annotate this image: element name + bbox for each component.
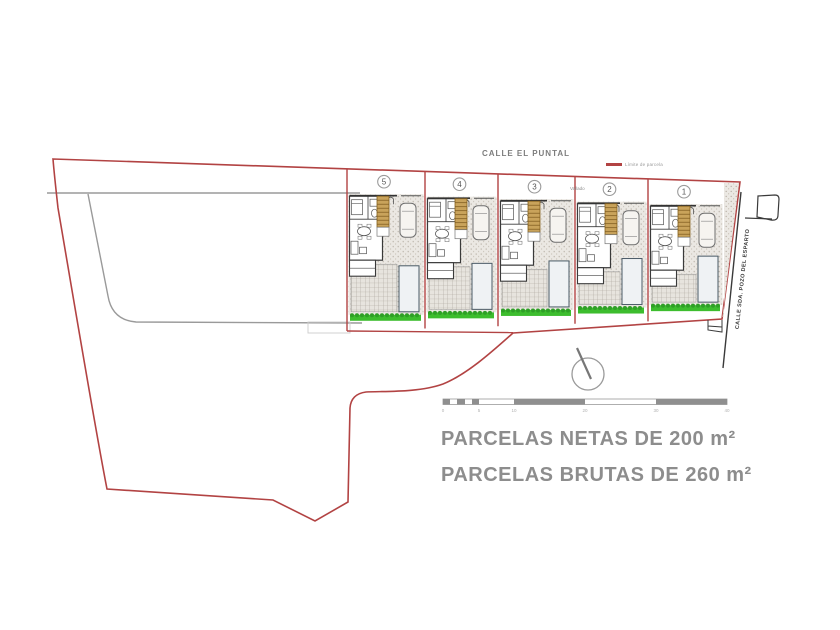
hedge-bush (438, 311, 442, 315)
hedge-bush (671, 304, 675, 308)
chair-symbol (436, 239, 440, 242)
hedge-bush (385, 313, 389, 317)
staircase (455, 199, 467, 230)
bed-symbol (430, 202, 441, 217)
scale-seg (443, 399, 450, 405)
scale-seg (457, 399, 465, 405)
hedge-bush (370, 313, 374, 317)
hedge-bush (598, 306, 602, 310)
hedge-bush (478, 311, 482, 315)
hedge-bush (546, 308, 550, 312)
hedge-bush (468, 311, 472, 315)
hedge-bush (365, 313, 369, 317)
stair-landing (678, 237, 690, 246)
existing-contour-lines (47, 193, 362, 333)
scale-tick-label: 5 (478, 408, 481, 413)
hedge-bush (355, 313, 359, 317)
pool (472, 263, 492, 309)
hedge-bush (453, 311, 457, 315)
hedge-bush (608, 306, 612, 310)
hedge-bush (551, 308, 555, 312)
chair-symbol (436, 227, 440, 230)
hedge-bush (681, 304, 685, 308)
street-corner-island (757, 195, 779, 220)
hedge-bush (463, 311, 467, 315)
hedge-bush (711, 304, 715, 308)
scale-seg (656, 399, 727, 405)
side-table (588, 255, 595, 262)
hedge-bush (483, 311, 487, 315)
hedge-bush (400, 313, 404, 317)
stair-landing (377, 227, 389, 236)
chair-symbol (586, 232, 590, 235)
plot-number: 5 (382, 177, 387, 186)
chair-symbol (586, 244, 590, 247)
hedge-bush (531, 308, 535, 312)
hedge-bush (415, 313, 419, 317)
sofa-symbol (351, 241, 358, 254)
toilet-symbol (600, 217, 606, 225)
hedge-bush (488, 311, 492, 315)
side-table (438, 250, 445, 257)
hedge-bush (375, 313, 379, 317)
legend-label: Límite de parcela (625, 162, 663, 167)
contour-slope-line (88, 194, 362, 323)
gross-parcels-title: PARCELAS BRUTAS DE 260 m² (441, 464, 752, 487)
stair-landing (605, 235, 617, 244)
legend-line-swatch (606, 163, 622, 166)
side-table (511, 252, 518, 259)
hedge-bush (536, 308, 540, 312)
chair-symbol (367, 224, 371, 227)
bed-symbol (653, 210, 664, 225)
sofa-symbol (429, 244, 436, 257)
side-table (661, 257, 668, 264)
hedge-bush (686, 304, 690, 308)
hedge-bush (676, 304, 680, 308)
bed-symbol (352, 200, 363, 215)
scale-tick-label: 0 (442, 408, 445, 413)
existing-structure-outline (308, 322, 350, 333)
hedge-bush (578, 306, 582, 310)
hedge-bush (428, 311, 432, 315)
parcel-boundary-legend: Límite de parcela (606, 162, 663, 167)
hedge-bush (350, 313, 354, 317)
hedge-bush (458, 311, 462, 315)
hedge-bush (583, 306, 587, 310)
hedge-bush (516, 308, 520, 312)
scale-bar: 0510203040 (442, 399, 730, 413)
hedge-bush (448, 311, 452, 315)
plot-number: 2 (607, 185, 612, 194)
site-plan-canvas: 54321 0510203040 CALLE EL PUNTAL Límite (0, 0, 840, 630)
plot-2: 2 (577, 183, 647, 314)
sofa-symbol (579, 249, 586, 262)
chair-symbol (668, 234, 672, 237)
hedge-bush (656, 304, 660, 308)
toilet-symbol (673, 219, 679, 227)
pool (549, 261, 569, 307)
hedge-bush (501, 308, 505, 312)
hedge-bush (433, 311, 437, 315)
pool (698, 256, 718, 302)
plots-layer: 54321 (349, 175, 740, 320)
scale-seg (472, 399, 479, 405)
hedge-bush (706, 304, 710, 308)
hedge-bush (618, 306, 622, 310)
staircase (678, 206, 690, 237)
chair-symbol (509, 229, 513, 232)
plot-3: 3 (500, 180, 574, 316)
hedge-bush (613, 306, 617, 310)
north-arrow (572, 348, 604, 390)
chair-symbol (595, 244, 599, 247)
hedge-bush (443, 311, 447, 315)
car-symbol (699, 213, 715, 247)
plot-number: 3 (532, 182, 537, 191)
dining-table (436, 229, 449, 238)
street-label-top: CALLE EL PUNTAL (482, 149, 570, 158)
hedge-bush (603, 306, 607, 310)
stair-landing (455, 230, 467, 239)
hedge-bush (691, 304, 695, 308)
hedge-bush (395, 313, 399, 317)
scale-tick-label: 10 (511, 408, 517, 413)
hedge-bush (593, 306, 597, 310)
hedge-bush (511, 308, 515, 312)
chair-symbol (518, 229, 522, 232)
plot-5: 5 (349, 175, 424, 320)
site-plan-drawing: 54321 0510203040 (0, 0, 840, 630)
chair-symbol (445, 239, 449, 242)
dining-table (509, 232, 522, 241)
car-symbol (623, 211, 639, 245)
pool (622, 259, 642, 305)
bed-symbol (503, 205, 514, 220)
hedge-bush (526, 308, 530, 312)
hedge-bush (521, 308, 525, 312)
hedge-bush (633, 306, 637, 310)
chair-symbol (518, 241, 522, 244)
staircase (528, 201, 540, 232)
chair-symbol (659, 246, 663, 249)
north-needle (577, 348, 591, 379)
plot-4: 4 (427, 178, 497, 318)
plots-bottom-line (347, 331, 513, 333)
hedge-bush (623, 306, 627, 310)
hedge-bush (556, 308, 560, 312)
hedge-bush (410, 313, 414, 317)
hedge-bush (638, 306, 642, 310)
hedge-bush (380, 313, 384, 317)
hedge-bush (473, 311, 477, 315)
dining-table (586, 234, 599, 243)
hedge-bush (651, 304, 655, 308)
car-symbol (550, 208, 566, 242)
scale-tick-label: 20 (582, 408, 588, 413)
net-parcels-title: PARCELAS NETAS DE 200 m² (441, 428, 736, 451)
chair-symbol (358, 224, 362, 227)
chair-symbol (367, 236, 371, 239)
staircase (377, 196, 389, 227)
chair-symbol (358, 236, 362, 239)
pool (399, 266, 419, 312)
hedge-bush (588, 306, 592, 310)
plot-1: 1 (650, 185, 723, 311)
chair-symbol (659, 234, 663, 237)
toilet-symbol (523, 214, 529, 222)
hedge-bush (566, 308, 570, 312)
sofa-symbol (652, 251, 659, 264)
hedge-bush (716, 304, 720, 308)
hedge-bush (541, 308, 545, 312)
scale-tick-label: 40 (724, 408, 730, 413)
chair-symbol (668, 246, 672, 249)
staircase (605, 204, 617, 235)
hedge-bush (561, 308, 565, 312)
chair-symbol (445, 227, 449, 230)
hedge-bush (506, 308, 510, 312)
chair-symbol (509, 241, 513, 244)
street-access-steps (708, 320, 722, 332)
sofa-symbol (502, 246, 509, 259)
scale-tick-labels: 0510203040 (442, 408, 730, 413)
car-symbol (473, 206, 489, 240)
stair-landing (528, 232, 540, 241)
hedge-bush (360, 313, 364, 317)
scale-seg (514, 399, 585, 405)
hedge-bush (628, 306, 632, 310)
plot-number: 4 (457, 180, 462, 189)
fence-note: Vallado (570, 186, 585, 191)
dining-table (358, 227, 371, 236)
plot-number: 1 (682, 187, 687, 196)
car-symbol (400, 203, 416, 237)
hedge-bush (701, 304, 705, 308)
hedge-bush (666, 304, 670, 308)
hedge-bush (390, 313, 394, 317)
hedge-bush (661, 304, 665, 308)
hedge-bush (696, 304, 700, 308)
dining-table (659, 237, 672, 246)
bed-symbol (580, 207, 591, 222)
chair-symbol (595, 232, 599, 235)
scale-tick-label: 30 (653, 408, 659, 413)
hedge-bush (405, 313, 409, 317)
side-table (360, 247, 367, 254)
